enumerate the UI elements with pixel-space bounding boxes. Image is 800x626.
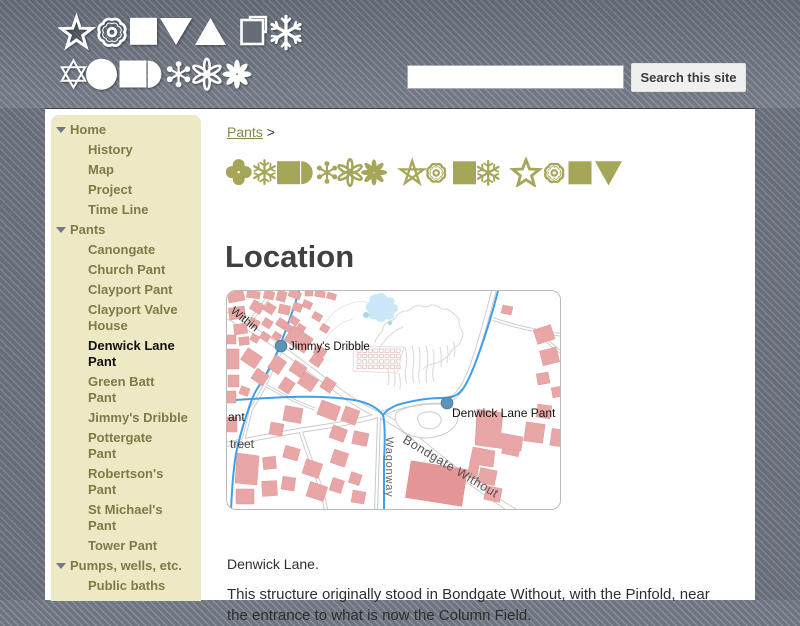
svg-text:Denwick Lane Pant: Denwick Lane Pant bbox=[452, 406, 556, 420]
svg-text:Jimmy's Dribble: Jimmy's Dribble bbox=[289, 341, 370, 353]
svg-text:Wagonway: Wagonway bbox=[383, 437, 395, 497]
svg-text:ant: ant bbox=[228, 410, 245, 424]
svg-text:treet: treet bbox=[230, 437, 255, 451]
